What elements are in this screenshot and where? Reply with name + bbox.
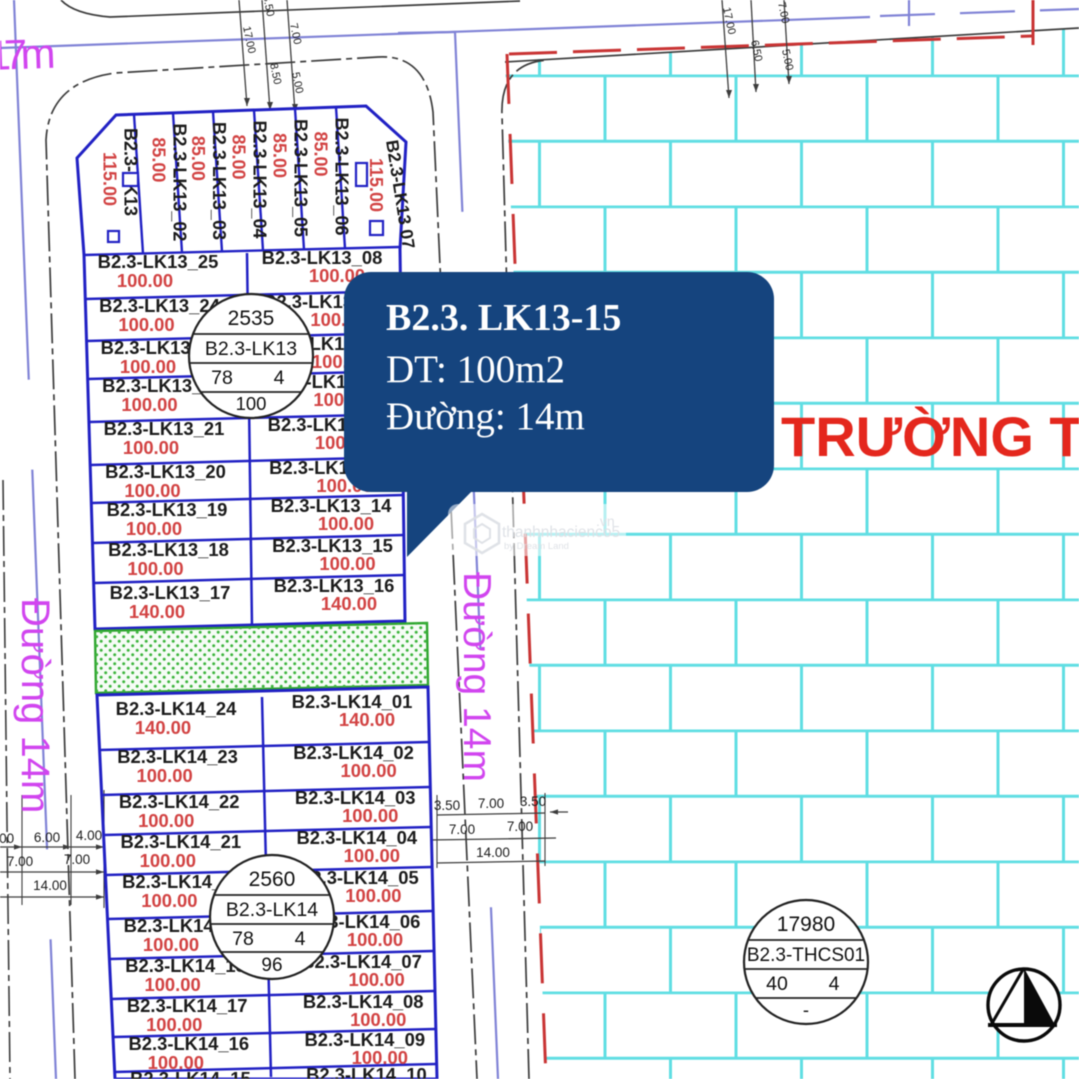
- svg-text:100.00: 100.00: [123, 437, 179, 458]
- svg-text:Đường: 14m: Đường: 14m: [386, 395, 585, 438]
- svg-text:115.00: 115.00: [100, 152, 120, 206]
- svg-text:Đường 14m: Đường 14m: [455, 572, 498, 782]
- svg-text:100.00: 100.00: [345, 885, 401, 906]
- svg-text:7.00: 7.00: [449, 822, 475, 837]
- svg-text:B2.3. LK13-15: B2.3. LK13-15: [386, 297, 621, 339]
- svg-text:B2.3-LK14_10: B2.3-LK14_10: [306, 1064, 427, 1079]
- svg-text:4.00: 4.00: [76, 828, 102, 843]
- svg-text:100.00: 100.00: [136, 765, 192, 786]
- svg-text:DT: 100m2: DT: 100m2: [386, 348, 565, 391]
- svg-text:B2.3-LK13_06: B2.3-LK13_06: [332, 117, 352, 235]
- svg-text:78: 78: [232, 928, 254, 950]
- svg-text:3.50: 3.50: [520, 794, 546, 809]
- svg-text:100.00: 100.00: [117, 270, 173, 291]
- svg-text:B2.3-LK13_18: B2.3-LK13_18: [108, 539, 229, 560]
- svg-text:B2.3-LK13_03: B2.3-LK13_03: [209, 122, 229, 240]
- svg-text:B2.3-THCS01: B2.3-THCS01: [747, 945, 865, 966]
- svg-text:100.00: 100.00: [140, 850, 196, 871]
- svg-text:3.50: 3.50: [434, 798, 460, 813]
- svg-text:85.00: 85.00: [229, 134, 249, 179]
- svg-text:100.00: 100.00: [126, 518, 182, 539]
- svg-text:100.00: 100.00: [348, 969, 404, 990]
- svg-text:7.00: 7.00: [64, 852, 90, 867]
- svg-text:4: 4: [295, 928, 306, 950]
- svg-text:B2.3-LK13_24: B2.3-LK13_24: [99, 295, 220, 316]
- svg-text:85.00: 85.00: [188, 136, 208, 181]
- svg-text:140.00: 140.00: [321, 593, 377, 614]
- svg-text:7.00: 7.00: [478, 796, 504, 811]
- svg-text:B2.3-LK14_22: B2.3-LK14_22: [119, 791, 240, 812]
- svg-text:B2.3-LK13_02: B2.3-LK13_02: [170, 123, 190, 241]
- svg-text:7.00: 7.00: [7, 854, 33, 869]
- svg-text:78: 78: [211, 367, 233, 389]
- svg-text:B2.3-LK13_20: B2.3-LK13_20: [105, 461, 226, 482]
- svg-text:100.00: 100.00: [350, 1009, 406, 1030]
- svg-text:14.00: 14.00: [476, 845, 510, 860]
- svg-text:B2.3-LK14_24: B2.3-LK14_24: [116, 698, 237, 719]
- svg-text:B2.3-LK13_17: B2.3-LK13_17: [110, 582, 231, 603]
- svg-text:4: 4: [274, 367, 285, 389]
- svg-text:40: 40: [766, 973, 788, 995]
- svg-text:by Dream Land: by Dream Land: [504, 541, 569, 552]
- svg-text:6.00: 6.00: [34, 830, 60, 845]
- svg-text:4: 4: [829, 973, 840, 995]
- svg-text:85.00: 85.00: [270, 133, 290, 178]
- svg-text:140.00: 140.00: [129, 601, 185, 622]
- svg-text:14.00: 14.00: [33, 878, 67, 893]
- svg-text:100.00: 100.00: [318, 513, 374, 534]
- svg-text:B2.3-LK14_16: B2.3-LK14_16: [128, 1033, 249, 1054]
- svg-text:100.00: 100.00: [138, 810, 194, 831]
- svg-text:B2.3-LK13_04: B2.3-LK13_04: [250, 120, 270, 238]
- svg-text:85.00: 85.00: [311, 131, 331, 176]
- svg-text:17m: 17m: [0, 30, 56, 79]
- svg-text:100.00: 100.00: [120, 356, 176, 377]
- svg-text:100.00: 100.00: [319, 553, 375, 574]
- svg-text:100.00: 100.00: [344, 845, 400, 866]
- svg-text:100.00: 100.00: [124, 480, 180, 501]
- svg-text:85.00: 85.00: [149, 137, 169, 182]
- svg-text:100.00: 100.00: [146, 1014, 202, 1035]
- svg-text:B2.3-LK14_21: B2.3-LK14_21: [120, 831, 241, 852]
- svg-text:4.00: 4.00: [0, 831, 14, 846]
- svg-text:100.00: 100.00: [127, 558, 183, 579]
- svg-text:B2.3-LK13_19: B2.3-LK13_19: [107, 499, 228, 520]
- svg-text:B2.3-LK13_25: B2.3-LK13_25: [98, 251, 219, 272]
- svg-text:B2.3-LK14_23: B2.3-LK14_23: [117, 746, 238, 767]
- svg-text:B2.3-LK13_21: B2.3-LK13_21: [104, 418, 225, 439]
- svg-text:100.00: 100.00: [121, 394, 177, 415]
- svg-text:100.00: 100.00: [118, 314, 174, 335]
- svg-text:100.00: 100.00: [141, 890, 197, 911]
- svg-text:B2.3-LK14: B2.3-LK14: [226, 899, 318, 921]
- svg-text:B2.3-LK14_15: B2.3-LK14_15: [130, 1068, 251, 1079]
- svg-text:100.00: 100.00: [342, 805, 398, 826]
- svg-text:100.00: 100.00: [347, 929, 403, 950]
- svg-text:96: 96: [261, 955, 282, 976]
- svg-text:2560: 2560: [249, 868, 296, 891]
- svg-text:140.00: 140.00: [339, 709, 395, 730]
- svg-text:.vn: .vn: [596, 513, 615, 529]
- svg-text:B2.3-LK14_17: B2.3-LK14_17: [127, 995, 248, 1016]
- svg-text:17980: 17980: [777, 913, 835, 936]
- svg-text:2535: 2535: [228, 307, 275, 330]
- svg-text:100.00: 100.00: [144, 974, 200, 995]
- svg-text:-: -: [803, 999, 809, 1020]
- svg-text:100.00: 100.00: [143, 934, 199, 955]
- svg-text:100: 100: [236, 393, 267, 414]
- svg-text:140.00: 140.00: [135, 717, 191, 738]
- svg-text:Đường 14m: Đường 14m: [13, 598, 57, 813]
- svg-text:100.00: 100.00: [340, 760, 396, 781]
- svg-text:TRƯỜNG TH: TRƯỜNG TH: [781, 405, 1079, 468]
- svg-text:115.00: 115.00: [366, 158, 386, 212]
- svg-text:7.00: 7.00: [507, 819, 533, 834]
- svg-text:B2.3-LK13: B2.3-LK13: [205, 338, 297, 360]
- svg-text:B2.3-LK13_05: B2.3-LK13_05: [291, 119, 311, 237]
